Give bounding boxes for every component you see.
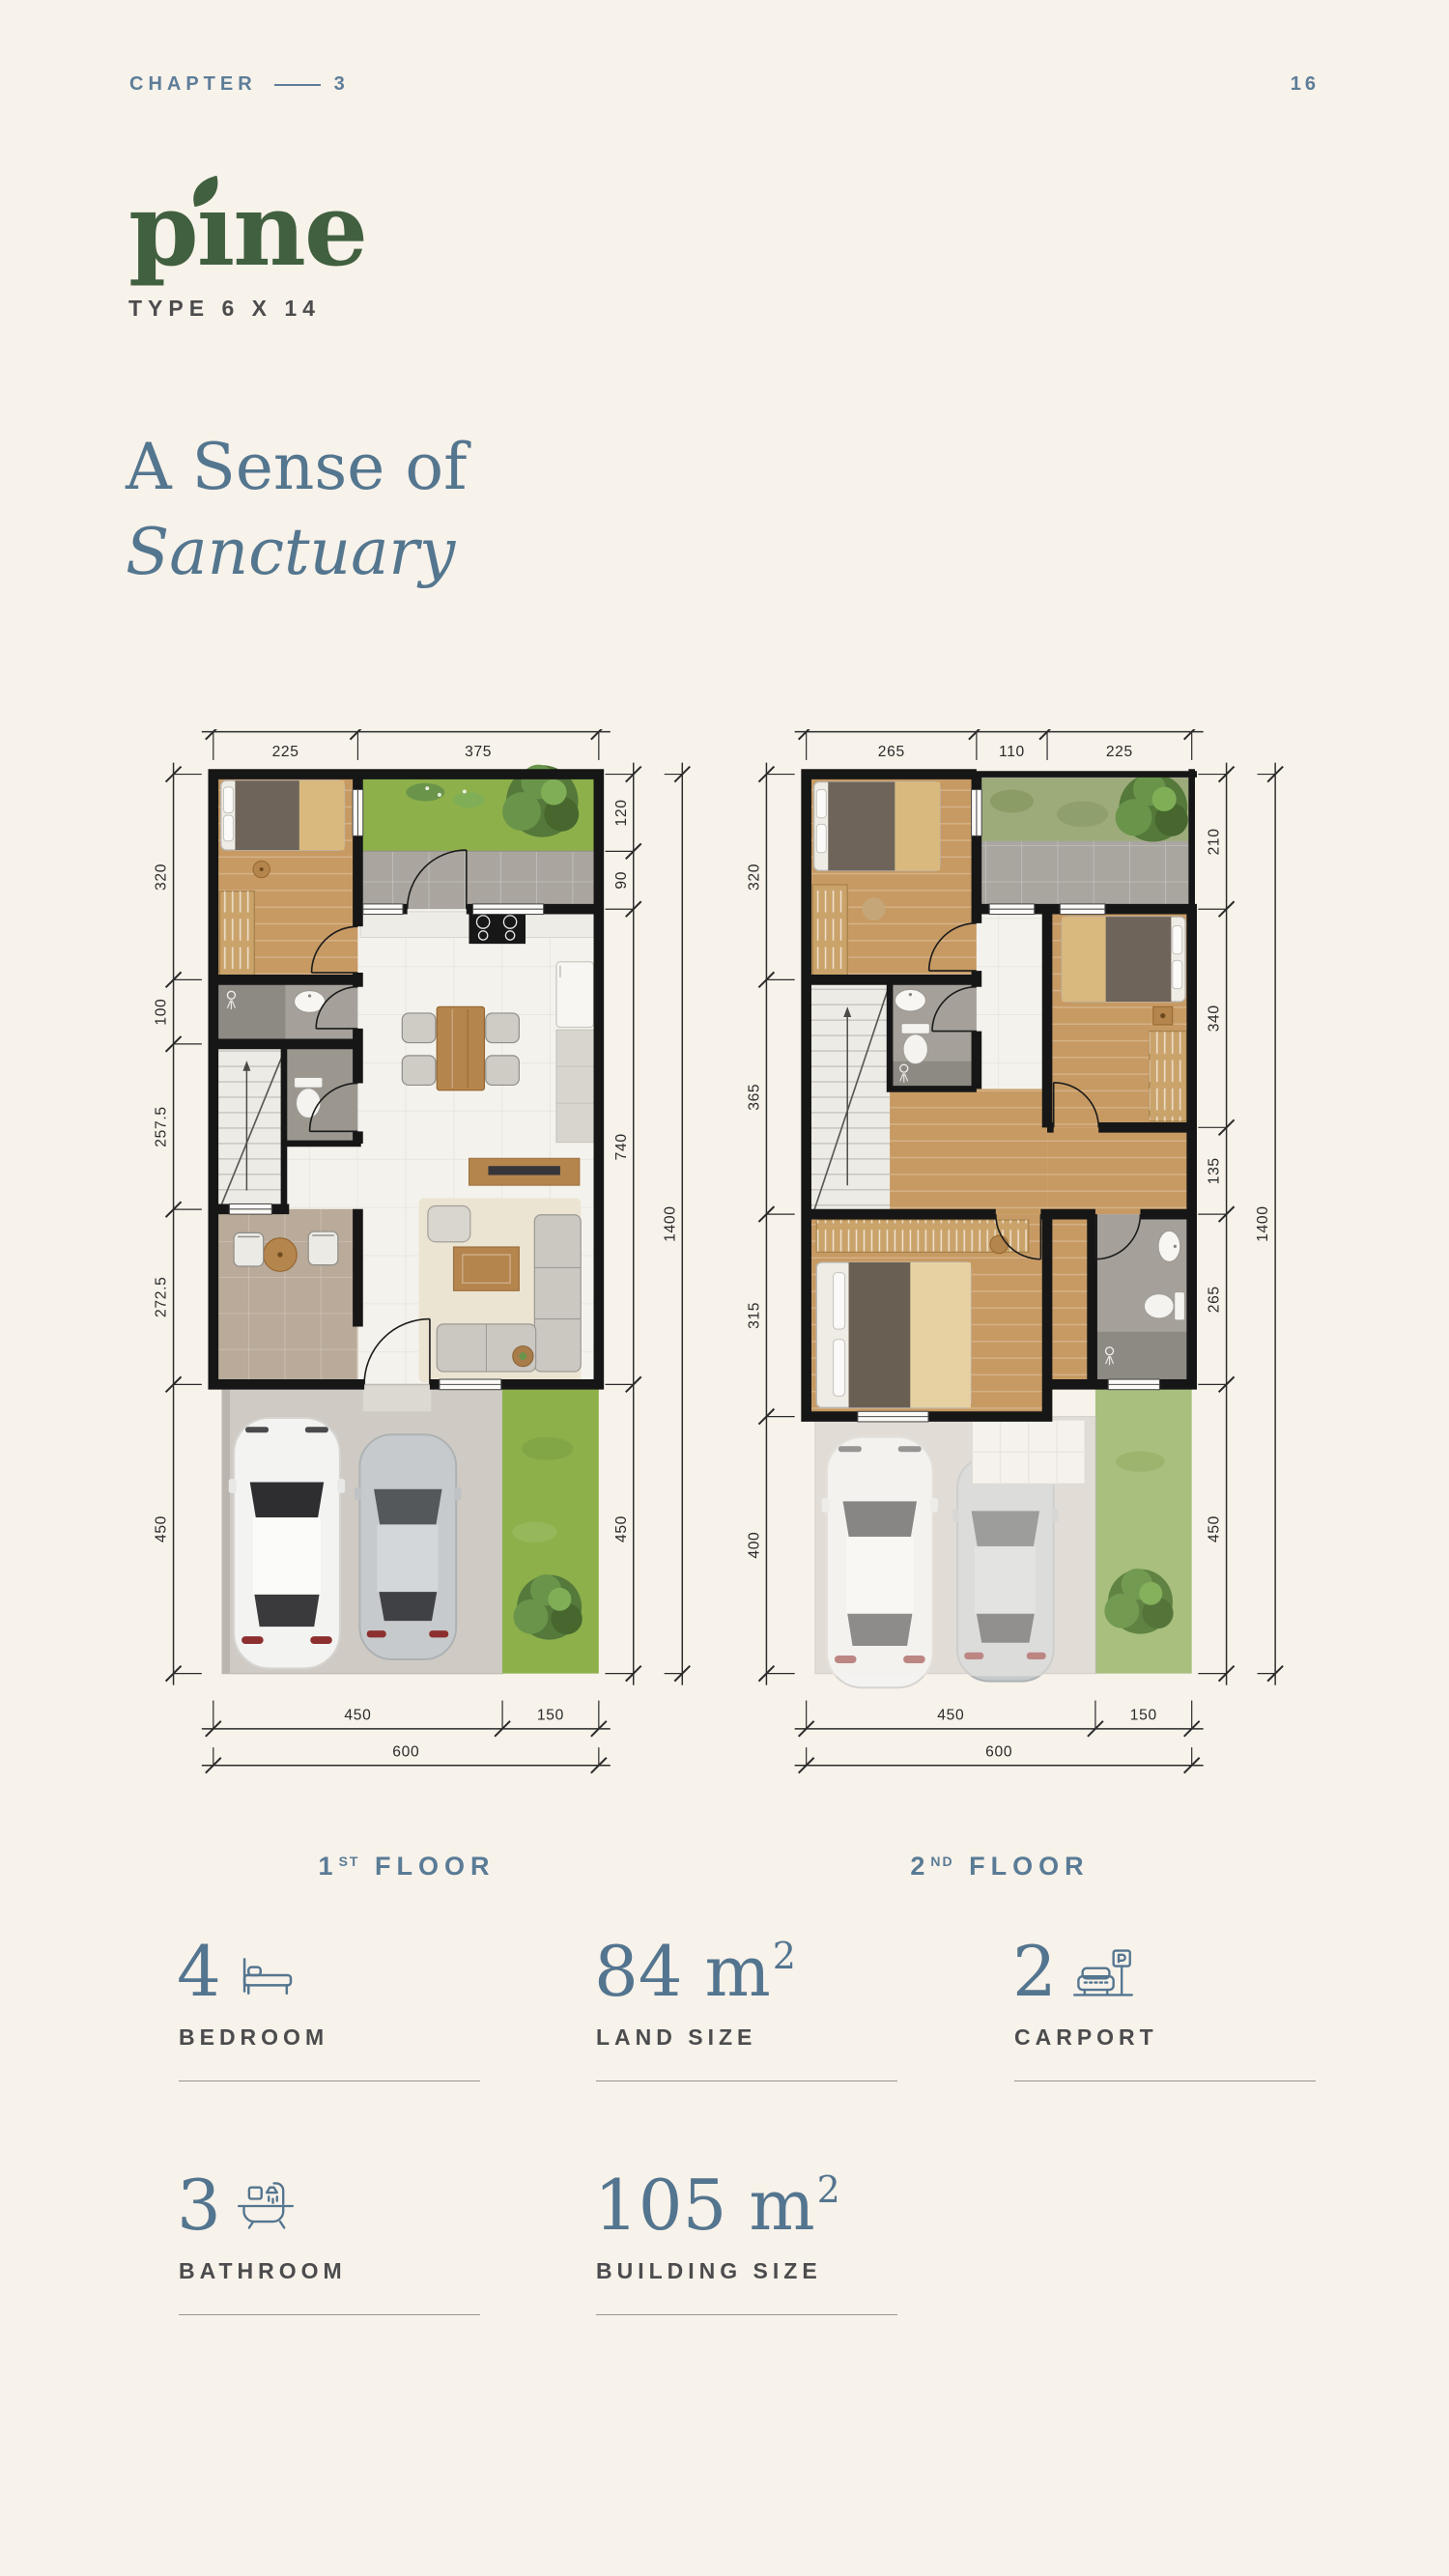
floor-ordinal: ST xyxy=(339,1854,360,1869)
dim-label: 272.5 xyxy=(154,1277,170,1317)
dim-label: 450 xyxy=(154,1515,170,1543)
brochure-page: CHAPTER 3 16 pıne TYPE 6 X 14 A Sense of… xyxy=(0,0,1449,2576)
dim-label: 450 xyxy=(613,1515,630,1543)
first-floor-plan: 225375450150600320100257.5272.5450120907… xyxy=(154,729,691,1773)
stat-underline xyxy=(179,2081,480,2081)
dim-label: 450 xyxy=(937,1708,964,1724)
floor-ordinal: ND xyxy=(930,1854,953,1869)
dim-label: 210 xyxy=(1207,828,1223,855)
dim-label: 450 xyxy=(344,1708,371,1724)
floor-number: 1 xyxy=(319,1852,339,1881)
dim-label: 225 xyxy=(1106,744,1133,760)
logo-letters: ne xyxy=(233,170,366,289)
chapter-number: 3 xyxy=(334,73,348,96)
dim-label: 225 xyxy=(272,744,299,760)
dim-label: 740 xyxy=(613,1133,630,1160)
dim-label: 600 xyxy=(985,1743,1012,1760)
bathtub-icon xyxy=(237,2179,295,2233)
dim-label: 135 xyxy=(1207,1157,1223,1184)
dim-label: 90 xyxy=(613,871,630,890)
stat-underline xyxy=(1014,2081,1316,2081)
dim-label: 1400 xyxy=(662,1205,678,1241)
dim-label: 120 xyxy=(613,799,630,826)
dim-label: 150 xyxy=(537,1708,564,1724)
dim-label: 1400 xyxy=(1255,1205,1271,1241)
page-number: 16 xyxy=(1291,73,1320,96)
floor-plans: 225375450150600320100257.5272.5450120907… xyxy=(127,729,1341,1796)
building-size-label: BUILDING SIZE xyxy=(596,2258,822,2284)
bedroom-count: 4 xyxy=(177,1939,221,2003)
dim-label: 257.5 xyxy=(154,1106,170,1146)
carport-count: 2 xyxy=(1012,1939,1057,2003)
floor-word: FLOOR xyxy=(969,1852,1090,1881)
stat-carport: 2 CARPORT xyxy=(1012,1928,1341,2003)
dim-label: 100 xyxy=(154,999,170,1026)
dim-label: 150 xyxy=(1130,1708,1157,1724)
title-line2: Sanctuary xyxy=(126,510,468,595)
page-header: CHAPTER 3 16 xyxy=(129,73,1320,96)
dim-label: 320 xyxy=(746,863,762,891)
chapter-divider-line xyxy=(274,84,321,86)
dim-label: 400 xyxy=(746,1532,762,1559)
dim-label: 265 xyxy=(878,744,905,760)
stat-underline xyxy=(179,2314,480,2315)
type-label: TYPE 6 X 14 xyxy=(128,296,366,322)
dim-label: 375 xyxy=(465,744,492,760)
brand-block: pıne TYPE 6 X 14 xyxy=(128,180,366,322)
bed-icon xyxy=(237,1951,297,1999)
pine-logo: pıne xyxy=(128,180,366,280)
second-floor-plan: 2651102254501506003203653154002103401352… xyxy=(746,729,1283,1773)
dim-label: 450 xyxy=(1207,1515,1223,1543)
stat-land-size: 84 m2 LAND SIZE xyxy=(594,1928,923,2003)
leaf-icon xyxy=(188,176,223,207)
title-line1: A Sense of xyxy=(126,425,468,510)
stat-building-size: 105 m2 BUILDING SIZE xyxy=(594,2162,923,2237)
second-floor-label: 2ND FLOOR xyxy=(807,1852,1193,1882)
building-size-value: 105 m2 xyxy=(594,2173,840,2237)
stat-underline xyxy=(596,2081,897,2081)
stat-bedroom: 4 BEDROOM xyxy=(177,1928,505,2003)
chapter-indicator: CHAPTER 3 xyxy=(129,73,348,96)
dim-label: 600 xyxy=(392,1743,419,1760)
land-size-value: 84 m2 xyxy=(594,1939,796,2003)
dim-label: 365 xyxy=(746,1084,762,1111)
logo-letter: p xyxy=(128,170,197,289)
chapter-label: CHAPTER xyxy=(129,73,257,96)
land-size-label: LAND SIZE xyxy=(596,2024,756,2051)
stat-bathroom: 3 BATHROOM xyxy=(177,2162,505,2237)
floor-number: 2 xyxy=(910,1852,930,1881)
bathroom-label: BATHROOM xyxy=(179,2258,347,2284)
bedroom-label: BEDROOM xyxy=(179,2024,328,2051)
floor-word: FLOOR xyxy=(375,1852,496,1881)
dim-label: 320 xyxy=(154,863,170,891)
page-title: A Sense of Sanctuary xyxy=(126,425,468,595)
bathroom-count: 3 xyxy=(177,2173,221,2237)
dim-label: 340 xyxy=(1207,1005,1223,1032)
dim-label: 315 xyxy=(746,1302,762,1329)
dim-label: 265 xyxy=(1207,1286,1223,1313)
carport-label: CARPORT xyxy=(1014,2024,1158,2051)
carport-ghost-view xyxy=(810,1415,1095,1687)
carport-icon xyxy=(1072,1947,1134,1999)
stat-underline xyxy=(596,2314,897,2315)
dim-label: 110 xyxy=(999,744,1025,760)
first-floor-label: 1ST FLOOR xyxy=(213,1852,600,1882)
